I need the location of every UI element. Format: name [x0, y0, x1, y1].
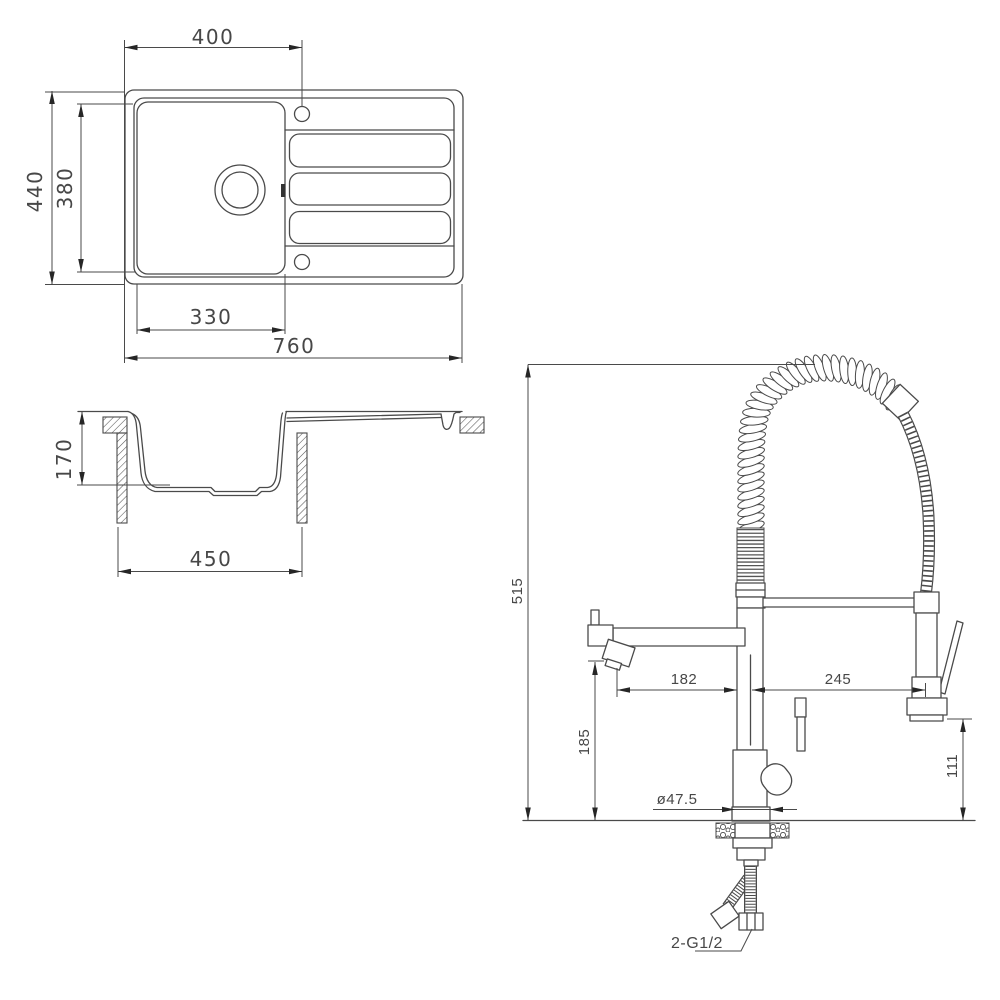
right-wall-section: [297, 433, 307, 523]
threaded-shank: [735, 823, 770, 838]
hose-nut-right: [739, 913, 763, 930]
pullout-hose: [903, 414, 929, 593]
spout-knob: [591, 610, 599, 625]
tap-hole-bottom: [295, 255, 310, 270]
mounting-hardware: [716, 823, 789, 866]
dim-label-spout-reach: 182: [671, 671, 698, 688]
sink-and-faucet-drawing: 400 440 380 330 760: [0, 0, 1000, 1000]
drainboard-surface-upper: [287, 414, 441, 418]
dim-label-spray-reach: 245: [825, 671, 852, 688]
hose-neck: [744, 860, 758, 866]
sink-top-view: 400 440 380 330 760: [23, 25, 463, 363]
support-bar: [763, 598, 915, 607]
drainboard-groove-3: [290, 212, 451, 244]
drain-inner-circle: [222, 172, 258, 208]
spring-close-wound-section: [737, 528, 764, 583]
lever-knob: [795, 698, 806, 717]
overflow-mark: [281, 184, 286, 197]
drainboard-surface-lower: [287, 418, 441, 422]
dim-label-spout-height: 185: [576, 729, 593, 756]
dim-label-bowl-width: 330: [190, 305, 233, 329]
spring-coil-loops: [737, 353, 904, 535]
supply-hoses: [711, 866, 763, 930]
dim-label-faucet-height: 515: [509, 578, 526, 605]
shank-connector: [737, 848, 765, 860]
drainboard-groove-1: [290, 134, 451, 167]
tap-hole-top: [295, 107, 310, 122]
lock-nut: [733, 838, 772, 848]
technical-drawing-canvas: 400 440 380 330 760: [0, 0, 1000, 1000]
dim-label-tap-offset: 400: [192, 25, 235, 49]
dim-label-section-width: 450: [190, 547, 233, 571]
dim-label-overall-depth: 440: [23, 170, 47, 213]
lever-shaft: [797, 717, 805, 751]
sink-outer-rim: [125, 90, 463, 284]
right-rim-section: [460, 417, 484, 433]
spray-body: [916, 613, 937, 677]
drainboard-end-groove: [441, 413, 460, 430]
spout-tube: [613, 628, 745, 646]
dim-label-overall-width: 760: [273, 334, 316, 358]
dim-label-base-diameter: ø47.5: [657, 791, 698, 808]
spray-hose-fitting: [914, 592, 939, 613]
bowl-profile-outer: [128, 412, 287, 496]
left-wall-section: [117, 433, 127, 523]
faucet-elevation-view: 515 182 245 185 111 ø47.5 2-G1/2: [509, 353, 975, 952]
sink-section-view: 170 450: [52, 412, 484, 578]
sink-inner-rim: [134, 98, 454, 277]
dim-label-bowl-depth: 170: [52, 438, 76, 481]
dim-label-inner-depth: 380: [53, 167, 77, 210]
spray-tip: [910, 715, 943, 721]
spray-nozzle: [907, 698, 947, 715]
left-rim-section: [103, 417, 127, 433]
sink-bowl-outline: [137, 102, 285, 274]
spray-trigger: [939, 621, 963, 694]
spray-head: [907, 592, 963, 721]
spray-lower-body: [912, 677, 941, 698]
left-spout: [588, 610, 745, 673]
connection-note-label: 2-G1/2: [671, 935, 723, 952]
drainboard-groove-2: [290, 173, 451, 205]
upper-body: [737, 597, 765, 608]
dim-label-spray-drop: 111: [944, 754, 961, 778]
bowl-profile-inner: [132, 413, 283, 492]
